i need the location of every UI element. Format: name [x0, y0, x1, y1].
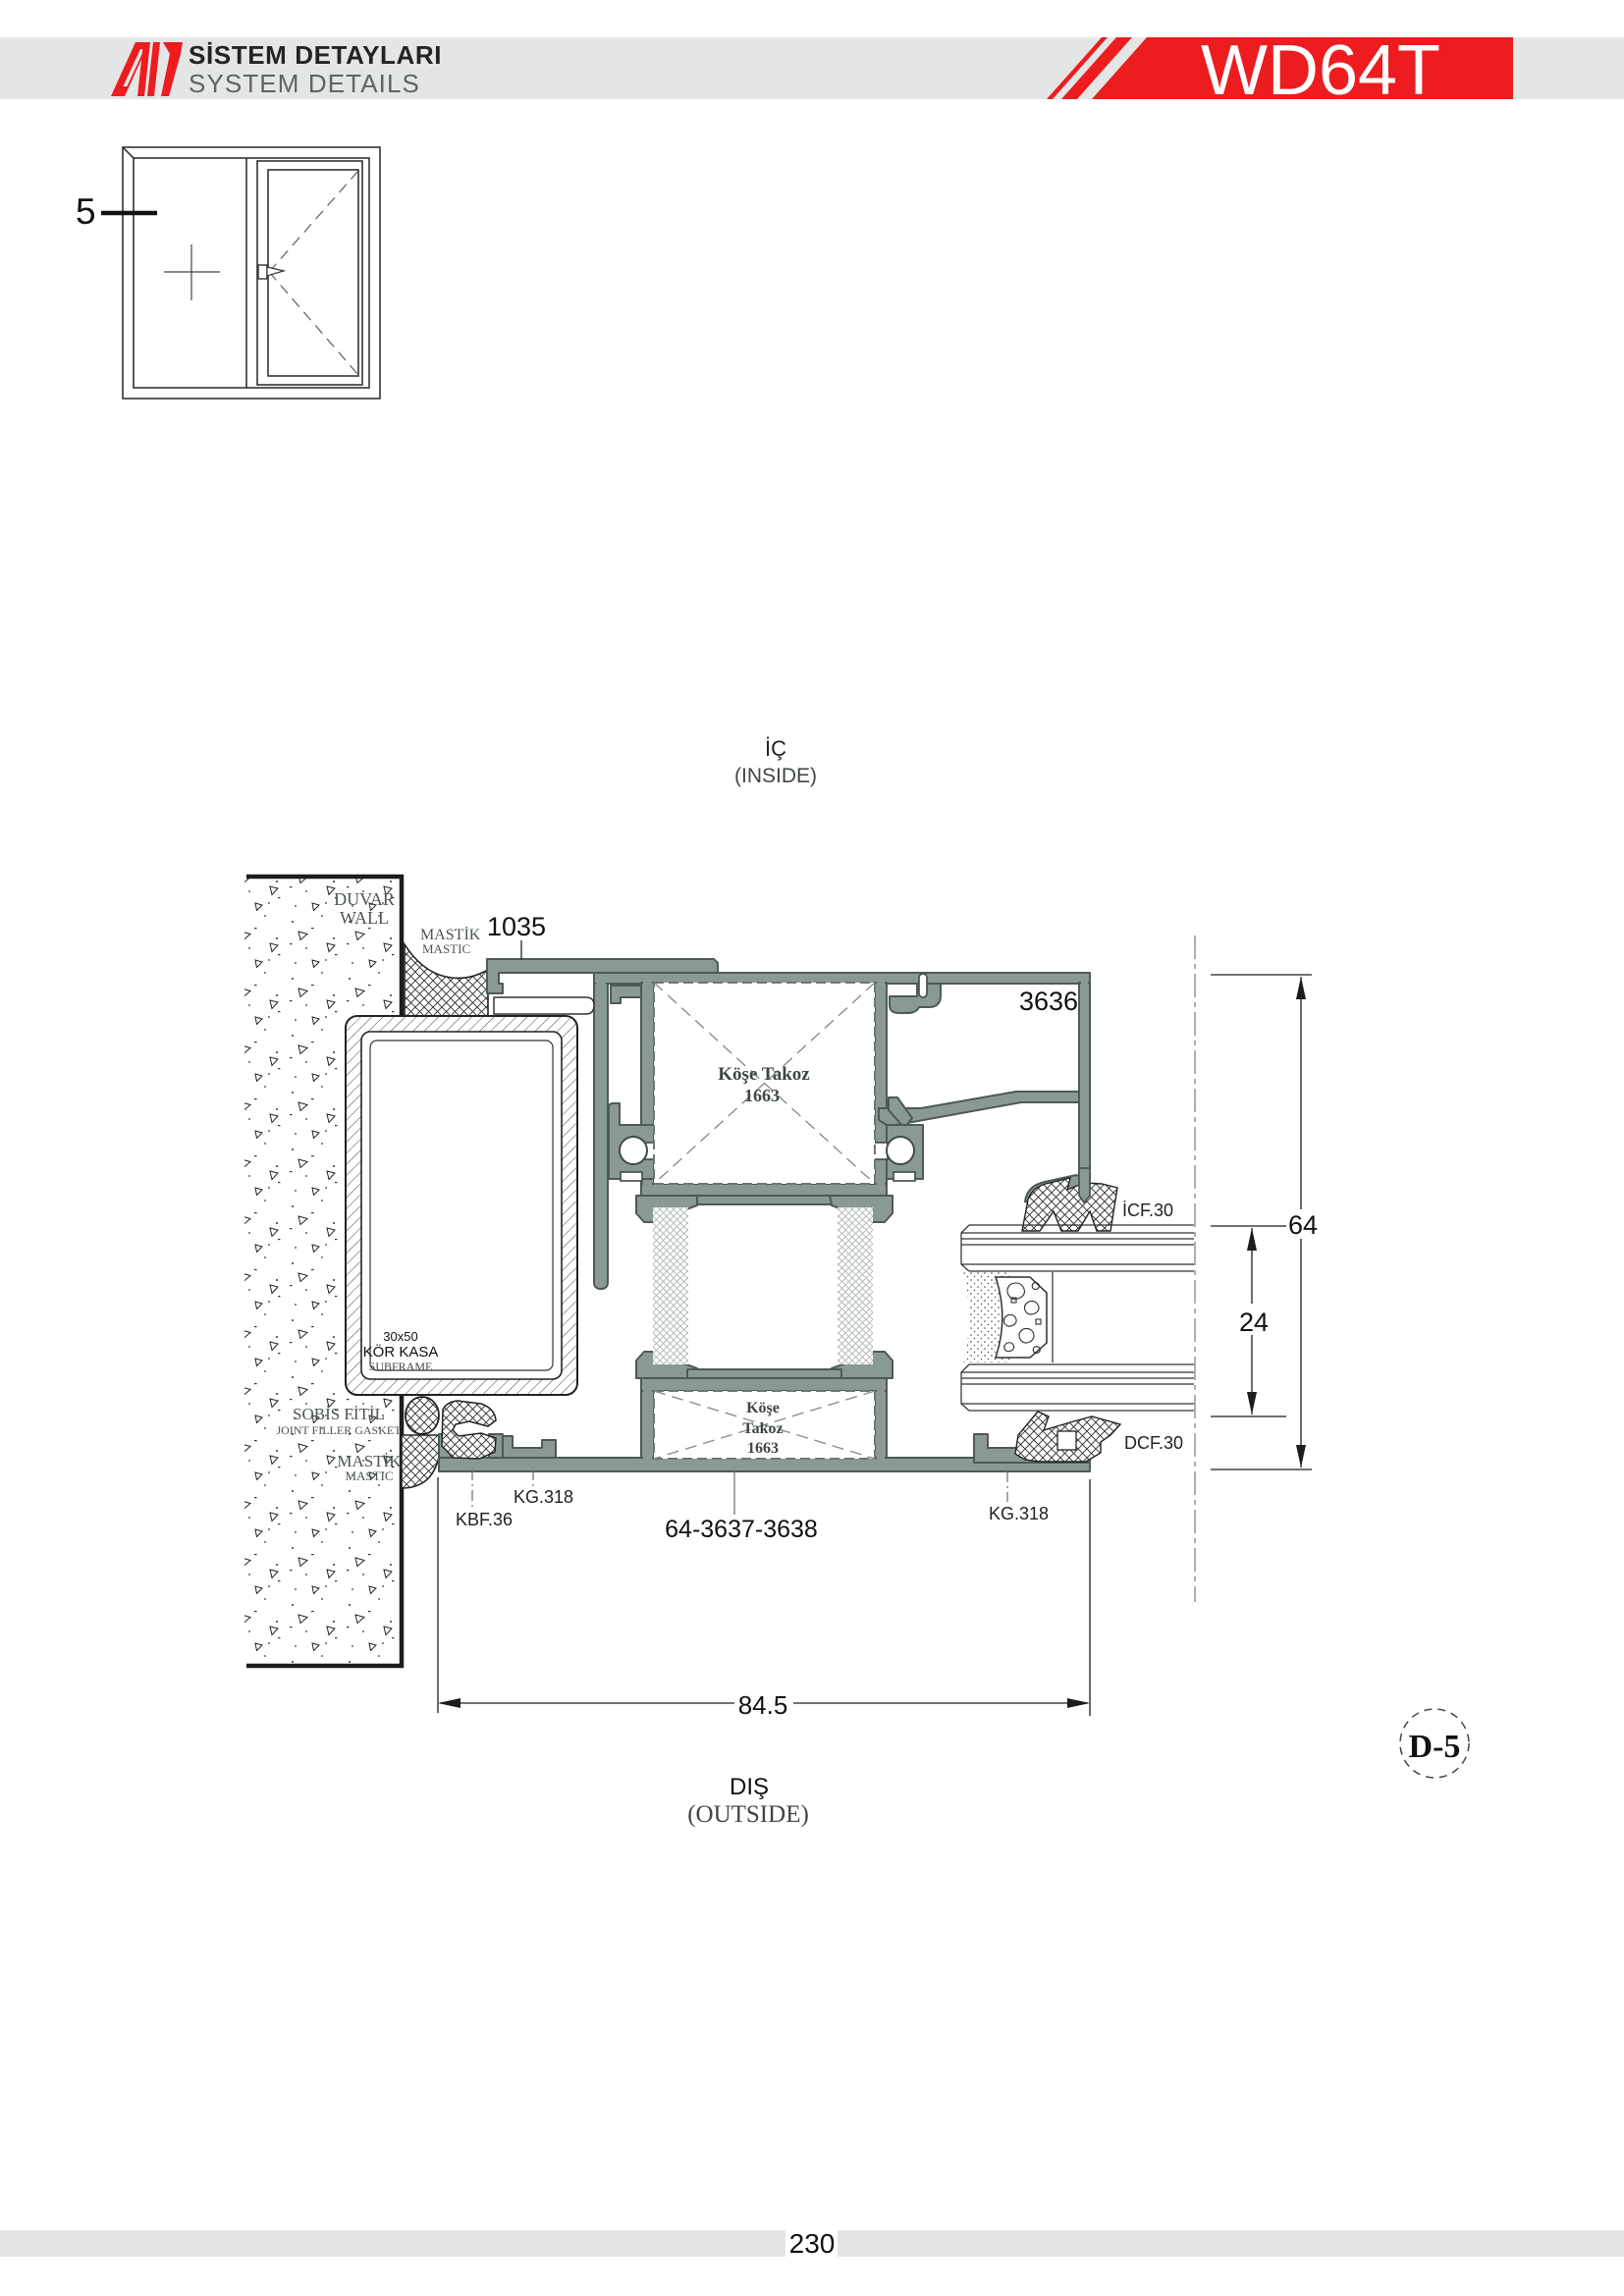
svg-text:1035: 1035 — [487, 912, 546, 941]
svg-text:SUBFRAME: SUBFRAME — [369, 1360, 433, 1373]
svg-text:64-3637-3638: 64-3637-3638 — [665, 1516, 818, 1543]
svg-text:3636: 3636 — [1019, 987, 1078, 1016]
svg-text:DCF.30: DCF.30 — [1124, 1433, 1183, 1453]
svg-text:KBF.36: KBF.36 — [456, 1510, 513, 1529]
svg-text:SİSTEM DETAYLARI: SİSTEM DETAYLARI — [189, 40, 442, 70]
svg-text:JOINT FILLER GASKET: JOINT FILLER GASKET — [276, 1423, 402, 1437]
svg-text:WALL: WALL — [340, 908, 389, 928]
svg-text:(OUTSIDE): (OUTSIDE) — [687, 1801, 809, 1828]
svg-text:30x50: 30x50 — [383, 1329, 417, 1344]
svg-text:64: 64 — [1288, 1210, 1318, 1240]
svg-text:230: 230 — [789, 2228, 836, 2259]
svg-text:SOBİS FİTİL: SOBİS FİTİL — [293, 1405, 385, 1423]
svg-text:(INSIDE): (INSIDE) — [734, 765, 817, 787]
svg-text:84.5: 84.5 — [738, 1690, 788, 1720]
svg-text:MASTIC: MASTIC — [345, 1468, 393, 1483]
svg-text:İÇ: İÇ — [765, 736, 786, 761]
svg-text:1663: 1663 — [744, 1086, 780, 1105]
svg-text:KG.318: KG.318 — [989, 1504, 1049, 1523]
svg-text:MASTIC: MASTIC — [422, 941, 470, 956]
svg-text:WD64T: WD64T — [1201, 31, 1440, 110]
svg-text:1663: 1663 — [747, 1440, 779, 1457]
svg-text:Köşe Takoz: Köşe Takoz — [718, 1064, 810, 1085]
svg-text:DIŞ: DIŞ — [730, 1774, 769, 1800]
svg-text:Köşe: Köşe — [746, 1400, 780, 1416]
svg-text:SYSTEM DETAILS: SYSTEM DETAILS — [189, 69, 420, 98]
svg-text:24: 24 — [1239, 1308, 1269, 1337]
svg-text:5: 5 — [76, 191, 96, 232]
svg-text:Takoz: Takoz — [742, 1420, 783, 1437]
svg-text:DUVAR: DUVAR — [334, 889, 395, 909]
svg-text:KG.318: KG.318 — [514, 1487, 573, 1507]
svg-text:KÖR KASA: KÖR KASA — [363, 1343, 439, 1361]
svg-text:İCF.30: İCF.30 — [1122, 1201, 1173, 1220]
svg-text:D-5: D-5 — [1409, 1729, 1461, 1765]
